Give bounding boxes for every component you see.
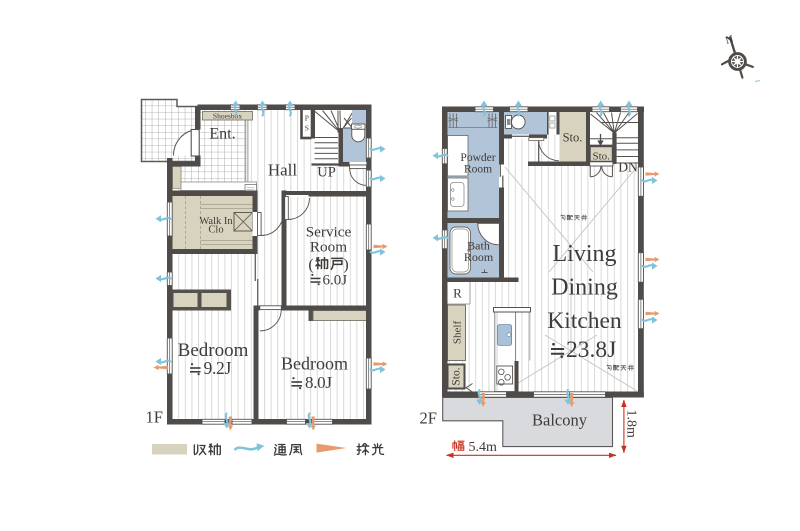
svg-text:S: S	[305, 124, 309, 133]
svg-text:8.0J: 8.0J	[305, 373, 332, 392]
svg-text:Ent.: Ent.	[209, 126, 235, 143]
svg-text:Sto.: Sto.	[592, 151, 610, 163]
svg-text:R: R	[453, 286, 462, 301]
svg-text:Powder: Powder	[460, 152, 495, 164]
svg-text:Sto.: Sto.	[563, 131, 583, 145]
svg-text:DN: DN	[618, 160, 638, 175]
svg-text:(: (	[308, 257, 313, 274]
svg-text:Dining: Dining	[551, 275, 618, 301]
svg-text:Kitchen: Kitchen	[547, 308, 622, 334]
svg-text:1F: 1F	[146, 408, 163, 427]
svg-text:Room: Room	[464, 164, 492, 176]
svg-text:Bedroom: Bedroom	[281, 354, 348, 374]
svg-text:): )	[343, 257, 348, 274]
svg-text:Shoesbox: Shoesbox	[213, 112, 242, 121]
svg-text:9.2J: 9.2J	[204, 358, 232, 378]
svg-text:UP: UP	[317, 165, 336, 181]
svg-text:Sto.: Sto.	[451, 367, 463, 385]
svg-text:6.0J: 6.0J	[323, 273, 348, 289]
svg-text:Living: Living	[553, 241, 617, 267]
svg-text:Shelf: Shelf	[452, 321, 464, 345]
svg-text:Balcony: Balcony	[532, 411, 588, 430]
svg-text:Clo: Clo	[208, 225, 223, 236]
svg-text:5.4m: 5.4m	[469, 440, 498, 455]
svg-text:P: P	[305, 114, 309, 123]
svg-text:1.8m: 1.8m	[624, 410, 639, 439]
svg-text:Room: Room	[310, 239, 347, 256]
svg-text:2F: 2F	[420, 409, 437, 428]
svg-text:Room: Room	[464, 250, 494, 264]
svg-text:23.8J: 23.8J	[566, 337, 616, 363]
svg-text:Hall: Hall	[268, 161, 298, 180]
